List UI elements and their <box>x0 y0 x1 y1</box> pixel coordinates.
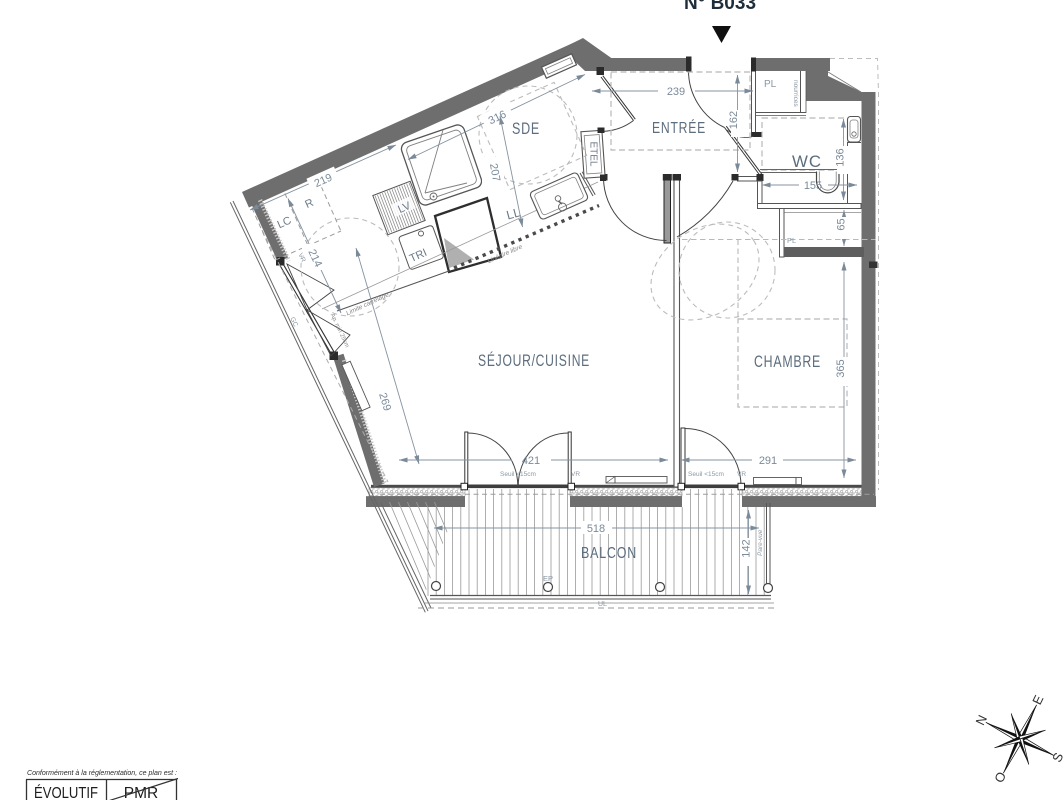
svg-text:PL: PL <box>787 236 796 245</box>
svg-text:nourrices: nourrices <box>792 80 799 107</box>
svg-text:136: 136 <box>835 148 847 166</box>
svg-text:SÉJOUR/CUISINE: SÉJOUR/CUISINE <box>478 351 590 370</box>
svg-text:N° B033: N° B033 <box>684 0 756 14</box>
svg-text:Conformément à la réglementati: Conformément à la réglementation, ce pla… <box>27 768 177 777</box>
svg-text:WC: WC <box>792 152 822 171</box>
svg-text:162: 162 <box>728 111 740 129</box>
svg-text:ENTRÉE: ENTRÉE <box>652 118 706 137</box>
svg-text:PMR: PMR <box>124 785 158 800</box>
svg-text:155: 155 <box>804 180 822 192</box>
svg-text:UL: UL <box>598 601 607 608</box>
svg-text:CHAMBRE: CHAMBRE <box>754 353 821 371</box>
svg-text:VR: VR <box>571 471 580 478</box>
svg-text:ETEL: ETEL <box>587 141 598 166</box>
svg-text:291: 291 <box>759 455 777 467</box>
svg-text:VR: VR <box>737 471 746 478</box>
svg-text:518: 518 <box>587 523 605 535</box>
svg-text:PL: PL <box>764 79 777 90</box>
svg-text:Pare-vue: Pare-vue <box>757 529 764 556</box>
svg-text:Seuil <15cm: Seuil <15cm <box>688 471 724 478</box>
svg-text:421: 421 <box>522 455 540 467</box>
svg-text:EP: EP <box>543 574 553 583</box>
svg-text:SDE: SDE <box>512 119 540 138</box>
svg-text:BALCON: BALCON <box>581 545 637 562</box>
svg-text:ÉVOLUTIF: ÉVOLUTIF <box>34 785 98 800</box>
svg-text:239: 239 <box>667 86 685 98</box>
svg-text:Seuil <15cm: Seuil <15cm <box>500 471 536 478</box>
svg-text:365: 365 <box>835 359 847 377</box>
svg-text:65: 65 <box>836 218 848 230</box>
svg-text:142: 142 <box>741 539 753 557</box>
